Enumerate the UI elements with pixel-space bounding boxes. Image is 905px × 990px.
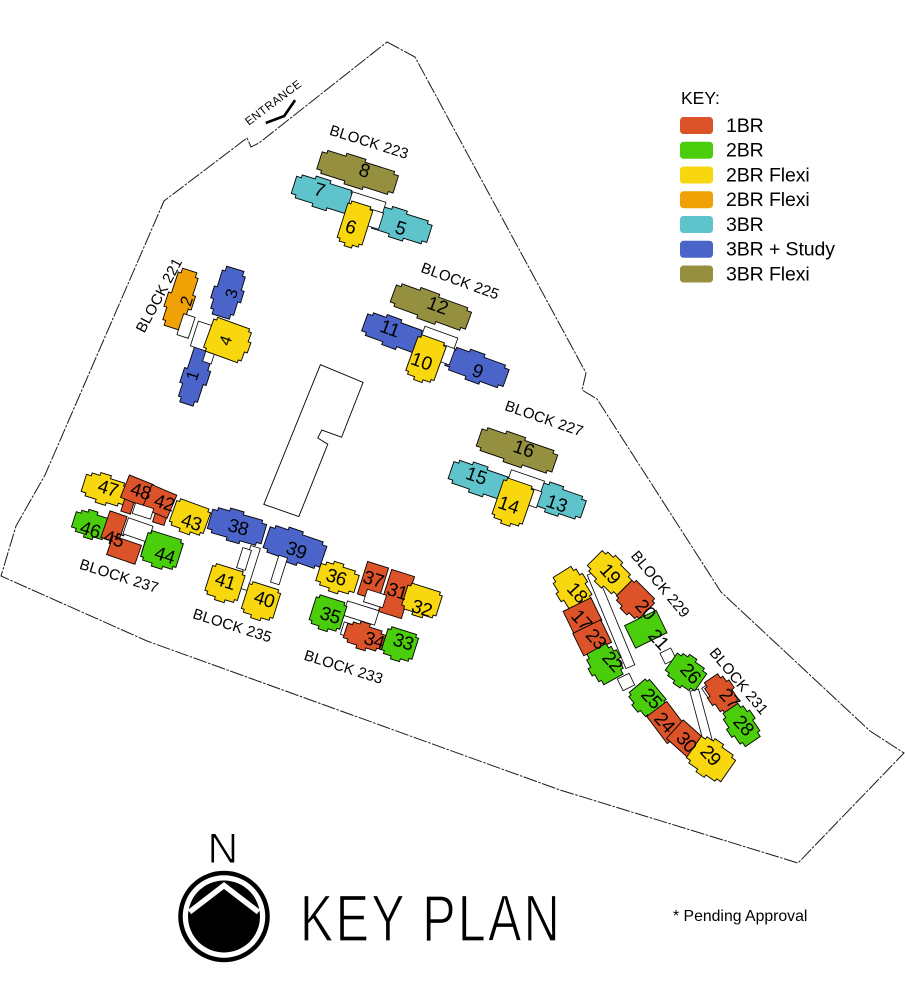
svg-text:1BR: 1BR: [726, 115, 764, 137]
svg-text:3BR: 3BR: [726, 214, 764, 236]
svg-text:KEY:: KEY:: [681, 88, 720, 108]
svg-text:2BR Flexi: 2BR Flexi: [726, 164, 810, 186]
svg-text:3BR + Study: 3BR + Study: [726, 239, 835, 261]
svg-text:3BR Flexi: 3BR Flexi: [726, 263, 810, 285]
svg-text:N: N: [207, 826, 238, 873]
svg-text:* Pending Approval: * Pending Approval: [673, 908, 807, 925]
svg-text:BLOCK 233: BLOCK 233: [302, 647, 385, 688]
svg-text:KEY PLAN: KEY PLAN: [300, 881, 562, 955]
svg-text:2BR: 2BR: [726, 140, 764, 162]
svg-text:2BR Flexi: 2BR Flexi: [726, 189, 810, 211]
